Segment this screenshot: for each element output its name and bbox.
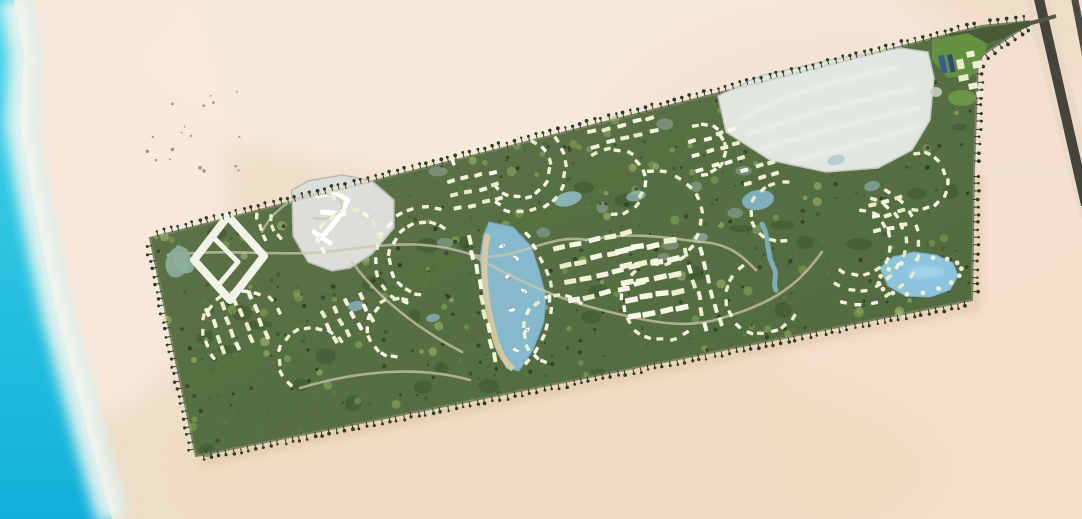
perimeter-tree bbox=[578, 122, 582, 126]
perimeter-tree bbox=[809, 336, 812, 339]
perimeter-tree bbox=[868, 324, 871, 327]
perimeter-tree bbox=[556, 126, 560, 130]
perimeter-tree bbox=[982, 81, 985, 84]
building-unit bbox=[946, 178, 950, 185]
perimeter-tree bbox=[182, 418, 185, 421]
lake-rim-building bbox=[959, 266, 964, 271]
perimeter-tree bbox=[801, 338, 804, 341]
building-unit bbox=[422, 205, 429, 209]
perimeter-tree bbox=[595, 379, 598, 382]
perimeter-tree bbox=[279, 197, 283, 201]
perimeter-tree bbox=[914, 37, 916, 39]
perimeter-tree bbox=[769, 73, 772, 76]
perimeter-tree bbox=[438, 410, 442, 414]
perimeter-tree bbox=[978, 236, 980, 238]
building-unit bbox=[516, 210, 523, 214]
perimeter-tree bbox=[249, 205, 252, 208]
building-unit bbox=[780, 239, 787, 243]
perimeter-tree bbox=[373, 424, 376, 427]
perimeter-tree bbox=[977, 213, 980, 216]
screenshot-root bbox=[0, 0, 1082, 519]
perimeter-tree bbox=[388, 420, 391, 423]
perimeter-tree bbox=[608, 375, 612, 379]
perimeter-tree bbox=[483, 147, 486, 150]
perimeter-tree bbox=[976, 220, 979, 223]
perimeter-tree bbox=[1000, 46, 1003, 49]
perimeter-tree bbox=[156, 291, 158, 293]
lake-rim-building bbox=[878, 274, 883, 279]
building-unit bbox=[269, 214, 273, 221]
perimeter-tree bbox=[897, 318, 900, 321]
perimeter-tree bbox=[453, 154, 457, 158]
perimeter-tree bbox=[439, 157, 443, 161]
perimeter-tree bbox=[183, 426, 186, 429]
perimeter-tree bbox=[330, 184, 333, 187]
perimeter-tree bbox=[327, 432, 331, 436]
perimeter-tree bbox=[965, 23, 969, 27]
perimeter-tree bbox=[1022, 15, 1025, 18]
perimeter-tree bbox=[636, 108, 639, 111]
perimeter-tree bbox=[669, 364, 672, 367]
perimeter-tree bbox=[544, 389, 547, 392]
perimeter-tree bbox=[432, 412, 436, 416]
perimeter-tree bbox=[366, 176, 369, 179]
perimeter-tree bbox=[292, 440, 295, 443]
perimeter-tree bbox=[162, 321, 165, 324]
perimeter-tree bbox=[424, 414, 427, 417]
perimeter-tree bbox=[550, 388, 553, 391]
perimeter-tree bbox=[621, 111, 625, 115]
perimeter-tree bbox=[306, 438, 309, 441]
perimeter-tree bbox=[936, 31, 939, 34]
perimeter-tree bbox=[979, 128, 982, 131]
perimeter-tree bbox=[285, 443, 288, 446]
perimeter-tree bbox=[928, 313, 931, 316]
perimeter-tree bbox=[314, 435, 318, 439]
perimeter-tree bbox=[787, 340, 791, 344]
perimeter-tree bbox=[146, 253, 149, 256]
perimeter-tree bbox=[513, 139, 517, 143]
perimeter-tree bbox=[919, 313, 923, 317]
perimeter-tree bbox=[977, 159, 981, 163]
perimeter-tree bbox=[905, 317, 908, 320]
perimeter-tree bbox=[432, 159, 435, 162]
perimeter-tree bbox=[805, 65, 808, 68]
perimeter-tree bbox=[153, 283, 157, 287]
building-unit bbox=[749, 210, 753, 217]
perimeter-tree bbox=[779, 342, 783, 346]
perimeter-tree bbox=[976, 259, 979, 262]
perimeter-tree bbox=[521, 395, 524, 398]
perimeter-tree bbox=[300, 192, 303, 195]
building-unit bbox=[656, 337, 663, 341]
building-unit bbox=[647, 169, 654, 173]
perimeter-tree bbox=[403, 419, 406, 422]
lake-rim-building bbox=[904, 292, 909, 297]
perimeter-tree bbox=[633, 372, 636, 375]
perimeter-tree bbox=[146, 245, 149, 248]
perimeter-tree bbox=[320, 434, 324, 438]
perimeter-tree bbox=[683, 361, 686, 364]
perimeter-tree bbox=[976, 276, 978, 278]
perimeter-tree bbox=[950, 307, 953, 310]
perimeter-tree bbox=[585, 119, 589, 123]
perimeter-tree bbox=[798, 67, 801, 70]
perimeter-tree bbox=[942, 310, 946, 314]
perimeter-tree bbox=[601, 377, 604, 380]
perimeter-tree bbox=[1005, 17, 1009, 21]
perimeter-tree bbox=[749, 347, 753, 351]
perimeter-tree bbox=[270, 444, 273, 447]
perimeter-tree bbox=[240, 451, 243, 454]
perimeter-tree bbox=[359, 178, 362, 181]
perimeter-tree bbox=[731, 83, 734, 86]
perimeter-tree bbox=[272, 200, 275, 203]
building-unit bbox=[548, 296, 551, 303]
perimeter-tree bbox=[402, 166, 406, 170]
perimeter-tree bbox=[541, 131, 544, 134]
perimeter-tree bbox=[498, 399, 501, 402]
perimeter-tree bbox=[977, 151, 981, 155]
perimeter-tree bbox=[483, 402, 487, 406]
lake-rim-building bbox=[886, 267, 891, 272]
perimeter-tree bbox=[659, 102, 662, 105]
perimeter-tree bbox=[409, 415, 412, 418]
perimeter-tree bbox=[691, 359, 694, 362]
perimeter-tree bbox=[263, 201, 266, 204]
perimeter-tree bbox=[571, 125, 574, 128]
perimeter-tree bbox=[745, 78, 748, 81]
perimeter-tree bbox=[462, 406, 464, 408]
perimeter-tree bbox=[976, 252, 979, 255]
perimeter-tree bbox=[666, 100, 669, 103]
perimeter-tree bbox=[396, 169, 399, 172]
perimeter-tree bbox=[957, 308, 960, 311]
lake-rim-building bbox=[921, 290, 926, 295]
perimeter-tree bbox=[170, 357, 173, 360]
perimeter-tree bbox=[224, 453, 227, 456]
building-unit bbox=[917, 240, 920, 247]
perimeter-tree bbox=[752, 77, 755, 80]
perimeter-tree bbox=[411, 164, 413, 166]
perimeter-tree bbox=[507, 398, 510, 401]
perimeter-tree bbox=[993, 52, 997, 56]
lake-rim-building bbox=[936, 286, 941, 291]
perimeter-tree bbox=[187, 441, 190, 444]
perimeter-tree bbox=[906, 39, 909, 42]
perimeter-tree bbox=[156, 230, 158, 232]
perimeter-tree bbox=[650, 103, 653, 106]
building-unit bbox=[620, 293, 624, 300]
perimeter-tree bbox=[660, 365, 663, 368]
perimeter-tree bbox=[976, 198, 980, 202]
perimeter-tree bbox=[743, 349, 746, 352]
lake-rim-building bbox=[949, 280, 954, 285]
perimeter-tree bbox=[166, 344, 169, 347]
building-unit bbox=[724, 299, 728, 306]
perimeter-tree bbox=[243, 207, 246, 210]
perimeter-tree bbox=[395, 420, 398, 423]
perimeter-tree bbox=[976, 268, 979, 271]
perimeter-tree bbox=[757, 346, 761, 350]
perimeter-tree bbox=[387, 170, 390, 173]
perimeter-tree bbox=[1027, 29, 1030, 32]
perimeter-tree bbox=[830, 331, 833, 334]
perimeter-tree bbox=[825, 333, 828, 336]
building-unit bbox=[611, 212, 618, 216]
building-unit bbox=[255, 212, 259, 219]
perimeter-tree bbox=[352, 179, 355, 182]
perimeter-tree bbox=[988, 18, 992, 22]
perimeter-tree bbox=[323, 187, 326, 190]
perimeter-tree bbox=[950, 28, 954, 32]
perimeter-tree bbox=[978, 135, 981, 138]
perimeter-tree bbox=[702, 89, 706, 93]
perimeter-tree bbox=[913, 315, 916, 318]
perimeter-tree bbox=[178, 395, 181, 398]
building-unit bbox=[904, 236, 908, 243]
perimeter-tree bbox=[848, 54, 851, 57]
perimeter-tree bbox=[565, 386, 569, 390]
perimeter-tree bbox=[528, 392, 531, 395]
perimeter-tree bbox=[286, 197, 289, 200]
perimeter-tree bbox=[477, 403, 480, 406]
perimeter-tree bbox=[257, 204, 260, 207]
lake-rim-building bbox=[881, 287, 886, 292]
perimeter-tree bbox=[736, 350, 739, 353]
perimeter-tree bbox=[629, 109, 632, 112]
perimeter-tree bbox=[695, 92, 698, 95]
perimeter-tree bbox=[190, 220, 193, 223]
lake-rim-building bbox=[931, 255, 936, 260]
perimeter-tree bbox=[980, 112, 983, 115]
perimeter-tree bbox=[977, 182, 980, 185]
perimeter-tree bbox=[558, 387, 561, 390]
perimeter-tree bbox=[374, 174, 377, 177]
perimeter-tree bbox=[448, 410, 450, 412]
perimeter-tree bbox=[934, 310, 938, 314]
perimeter-tree bbox=[203, 458, 205, 460]
perimeter-tree bbox=[153, 276, 156, 279]
building-unit bbox=[854, 303, 861, 306]
lake-rim-building bbox=[945, 257, 950, 262]
perimeter-tree bbox=[228, 211, 231, 214]
perimeter-tree bbox=[336, 432, 338, 434]
perimeter-tree bbox=[337, 183, 340, 186]
perimeter-tree bbox=[765, 345, 768, 348]
perimeter-tree bbox=[838, 331, 841, 334]
perimeter-tree bbox=[179, 402, 182, 405]
perimeter-tree bbox=[170, 225, 173, 228]
perimeter-tree bbox=[889, 319, 892, 322]
perimeter-tree bbox=[162, 228, 165, 231]
perimeter-tree bbox=[157, 297, 161, 301]
perimeter-tree bbox=[834, 57, 837, 60]
perimeter-tree bbox=[721, 355, 724, 358]
lake-rim-building bbox=[890, 291, 895, 296]
building-unit bbox=[911, 208, 918, 212]
perimeter-tree bbox=[185, 433, 188, 436]
perimeter-tree bbox=[710, 89, 713, 92]
perimeter-tree bbox=[819, 61, 822, 64]
perimeter-tree bbox=[234, 209, 237, 212]
perimeter-tree bbox=[418, 415, 421, 418]
perimeter-tree bbox=[210, 455, 214, 459]
perimeter-tree bbox=[580, 381, 583, 384]
perimeter-tree bbox=[170, 366, 173, 369]
perimeter-tree bbox=[816, 334, 819, 337]
perimeter-tree bbox=[469, 405, 472, 408]
perimeter-tree bbox=[292, 195, 295, 198]
perimeter-tree bbox=[357, 427, 360, 430]
building-unit bbox=[278, 359, 282, 366]
building-unit bbox=[860, 289, 867, 293]
perimeter-tree bbox=[461, 151, 464, 154]
perimeter-tree bbox=[892, 43, 895, 46]
perimeter-tree bbox=[490, 144, 494, 148]
perimeter-tree bbox=[173, 381, 176, 384]
perimeter-tree bbox=[607, 113, 610, 116]
perimeter-tree bbox=[811, 63, 814, 66]
perimeter-tree bbox=[862, 325, 865, 328]
building-unit bbox=[366, 326, 370, 333]
perimeter-tree bbox=[623, 373, 627, 377]
perimeter-tree bbox=[979, 143, 982, 146]
perimeter-tree bbox=[534, 132, 537, 135]
perimeter-tree bbox=[586, 380, 589, 383]
perimeter-tree bbox=[977, 189, 981, 193]
perimeter-tree bbox=[351, 427, 355, 431]
perimeter-tree bbox=[343, 182, 347, 186]
perimeter-tree bbox=[957, 25, 960, 28]
lake-rim-building bbox=[955, 260, 960, 265]
perimeter-tree bbox=[976, 290, 980, 294]
perimeter-tree bbox=[790, 67, 793, 70]
perimeter-tree bbox=[163, 327, 166, 330]
perimeter-tree bbox=[513, 394, 516, 397]
perimeter-tree bbox=[455, 407, 458, 410]
perimeter-tree bbox=[728, 352, 731, 355]
perimeter-tree bbox=[254, 447, 257, 450]
perimeter-tree bbox=[176, 225, 179, 228]
perimeter-tree bbox=[491, 399, 494, 402]
perimeter-tree bbox=[884, 44, 887, 47]
perimeter-tree bbox=[986, 57, 989, 60]
masterplan-map bbox=[0, 0, 1082, 519]
perimeter-tree bbox=[714, 355, 716, 357]
perimeter-tree bbox=[527, 135, 530, 138]
perimeter-tree bbox=[677, 363, 680, 366]
perimeter-tree bbox=[921, 35, 925, 39]
perimeter-tree bbox=[276, 443, 279, 446]
building-unit bbox=[414, 292, 421, 296]
perimeter-tree bbox=[165, 336, 168, 339]
building-unit bbox=[757, 331, 764, 335]
perimeter-tree bbox=[977, 175, 980, 178]
perimeter-tree bbox=[996, 18, 1000, 22]
perimeter-tree bbox=[845, 328, 848, 331]
perimeter-tree bbox=[176, 387, 179, 390]
perimeter-tree bbox=[654, 367, 657, 370]
perimeter-tree bbox=[247, 450, 250, 453]
perimeter-tree bbox=[705, 358, 707, 360]
perimeter-tree bbox=[233, 452, 237, 456]
perimeter-tree bbox=[506, 142, 508, 144]
perimeter-tree bbox=[723, 85, 726, 88]
perimeter-tree bbox=[159, 312, 162, 315]
perimeter-tree bbox=[963, 304, 967, 308]
perimeter-tree bbox=[497, 141, 500, 144]
perimeter-tree bbox=[884, 322, 886, 324]
perimeter-tree bbox=[976, 282, 979, 285]
perimeter-tree bbox=[199, 218, 203, 222]
perimeter-tree bbox=[157, 304, 160, 307]
perimeter-tree bbox=[418, 162, 421, 165]
perimeter-tree bbox=[615, 112, 618, 115]
building-unit bbox=[643, 180, 647, 187]
perimeter-tree bbox=[298, 439, 301, 442]
perimeter-tree bbox=[564, 126, 566, 128]
building-unit bbox=[201, 329, 205, 336]
perimeter-tree bbox=[221, 213, 224, 216]
perimeter-tree bbox=[212, 214, 215, 217]
perimeter-tree bbox=[573, 383, 576, 386]
perimeter-tree bbox=[187, 449, 190, 452]
perimeter-tree bbox=[793, 339, 796, 342]
perimeter-tree bbox=[647, 368, 649, 370]
perimeter-tree bbox=[841, 54, 844, 57]
perimeter-tree bbox=[878, 46, 881, 49]
perimeter-tree bbox=[854, 51, 857, 54]
perimeter-tree bbox=[1014, 38, 1017, 41]
perimeter-tree bbox=[976, 229, 979, 232]
perimeter-tree bbox=[863, 50, 866, 53]
perimeter-tree bbox=[854, 327, 856, 329]
perimeter-tree bbox=[697, 358, 700, 361]
perimeter-tree bbox=[446, 156, 449, 159]
perimeter-tree bbox=[476, 148, 479, 151]
perimeter-tree bbox=[1021, 33, 1025, 37]
perimeter-tree bbox=[717, 87, 720, 90]
perimeter-tree bbox=[672, 98, 676, 102]
perimeter-tree bbox=[877, 323, 879, 325]
perimeter-tree bbox=[781, 70, 784, 73]
building-unit bbox=[513, 194, 520, 198]
perimeter-tree bbox=[150, 267, 154, 271]
perimeter-tree bbox=[316, 189, 320, 193]
perimeter-tree bbox=[172, 372, 175, 375]
perimeter-tree bbox=[381, 423, 384, 426]
perimeter-tree bbox=[869, 48, 872, 51]
building-unit bbox=[374, 257, 378, 264]
perimeter-tree bbox=[599, 117, 602, 120]
perimeter-tree bbox=[593, 117, 596, 120]
perimeter-tree bbox=[167, 351, 170, 354]
perimeter-tree bbox=[520, 136, 522, 138]
perimeter-tree bbox=[217, 454, 221, 458]
perimeter-tree bbox=[1006, 43, 1010, 47]
perimeter-tree bbox=[365, 425, 368, 428]
perimeter-tree bbox=[687, 93, 691, 97]
perimeter-tree bbox=[944, 29, 947, 32]
perimeter-tree bbox=[343, 429, 347, 433]
perimeter-tree bbox=[977, 243, 980, 246]
perimeter-tree bbox=[468, 150, 471, 153]
perimeter-tree bbox=[972, 22, 976, 26]
perimeter-tree bbox=[774, 71, 777, 74]
perimeter-tree bbox=[977, 206, 980, 209]
lake-rim-building bbox=[957, 273, 962, 278]
